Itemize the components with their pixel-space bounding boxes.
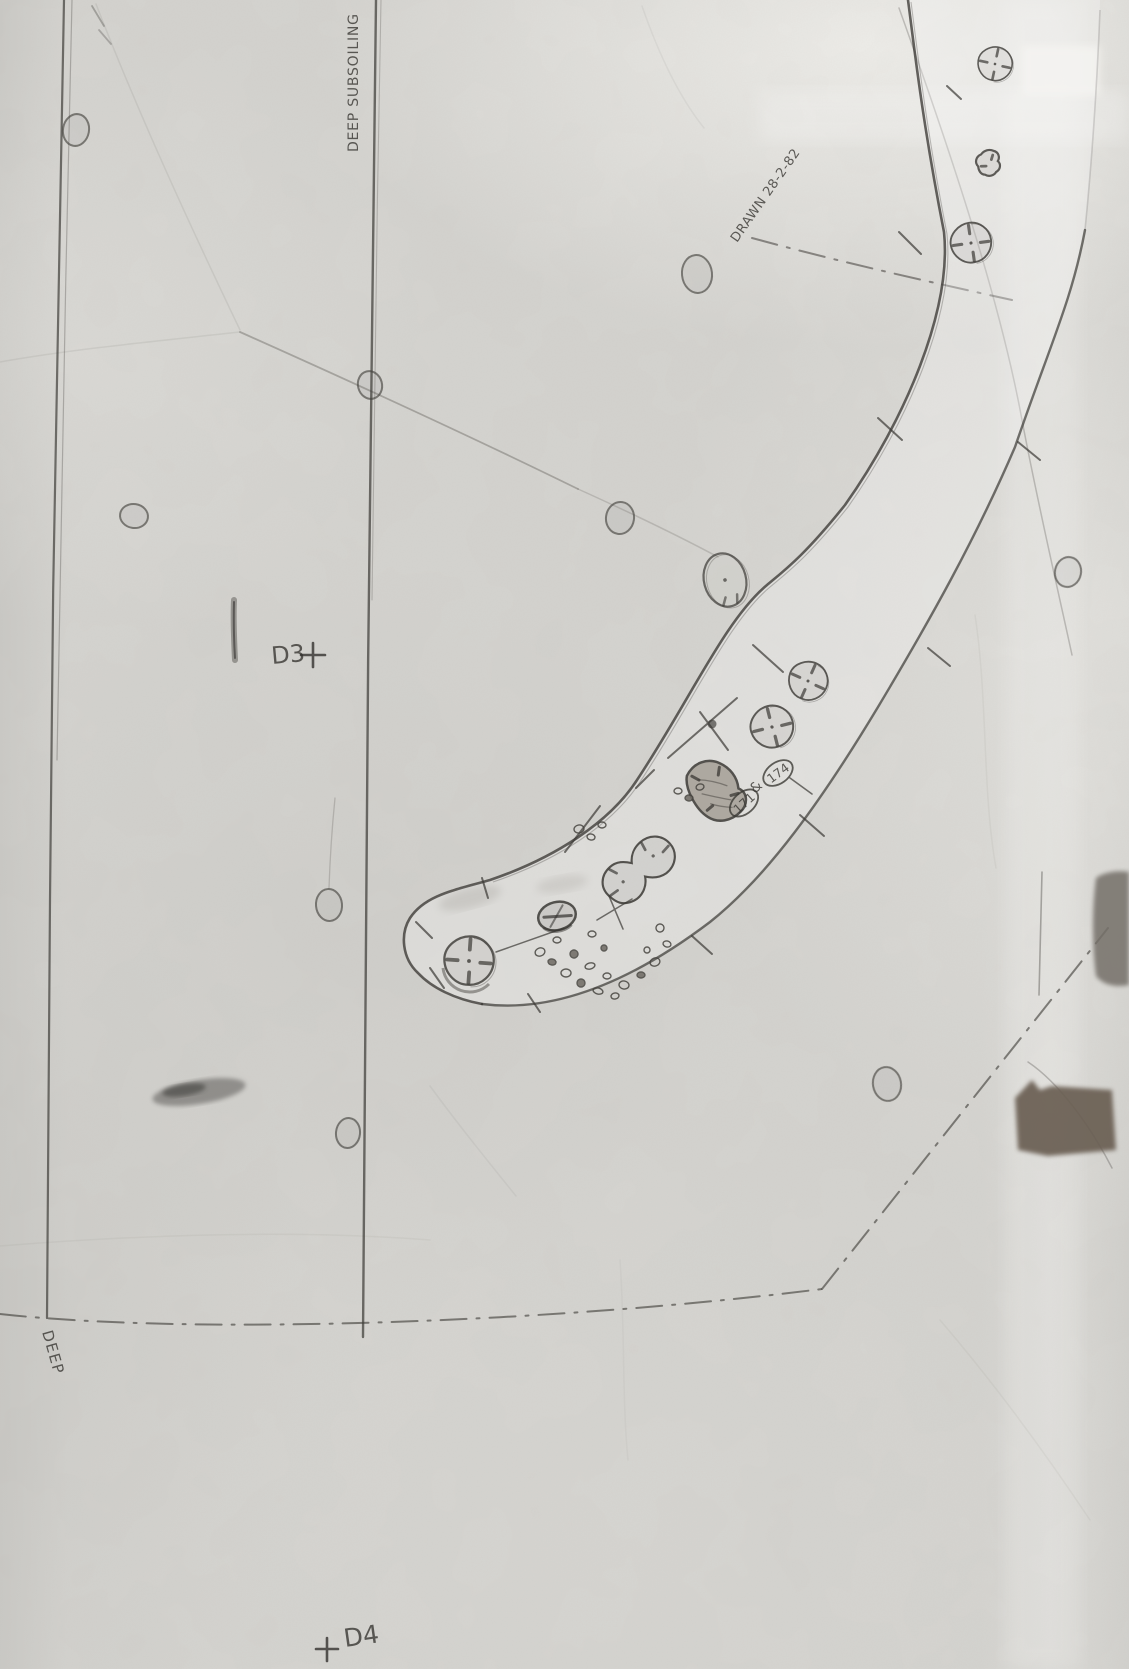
stone: [685, 795, 693, 801]
stone: [637, 972, 645, 978]
stone: [601, 945, 607, 951]
stone: [548, 958, 557, 965]
section-knot: [708, 720, 717, 729]
grey-patch: [1093, 871, 1129, 986]
d3-soil-mark-core: [234, 602, 235, 658]
deep-subsoiling-label: DEEP SUBSOILING: [346, 12, 362, 152]
plan-drawing: 171 & 174: [0, 0, 1129, 1669]
scanned-plan: 171 & 174: [0, 0, 1129, 1669]
brown-patch: [1015, 1080, 1116, 1156]
stone: [577, 979, 585, 987]
d4-label: D4: [342, 1619, 381, 1653]
